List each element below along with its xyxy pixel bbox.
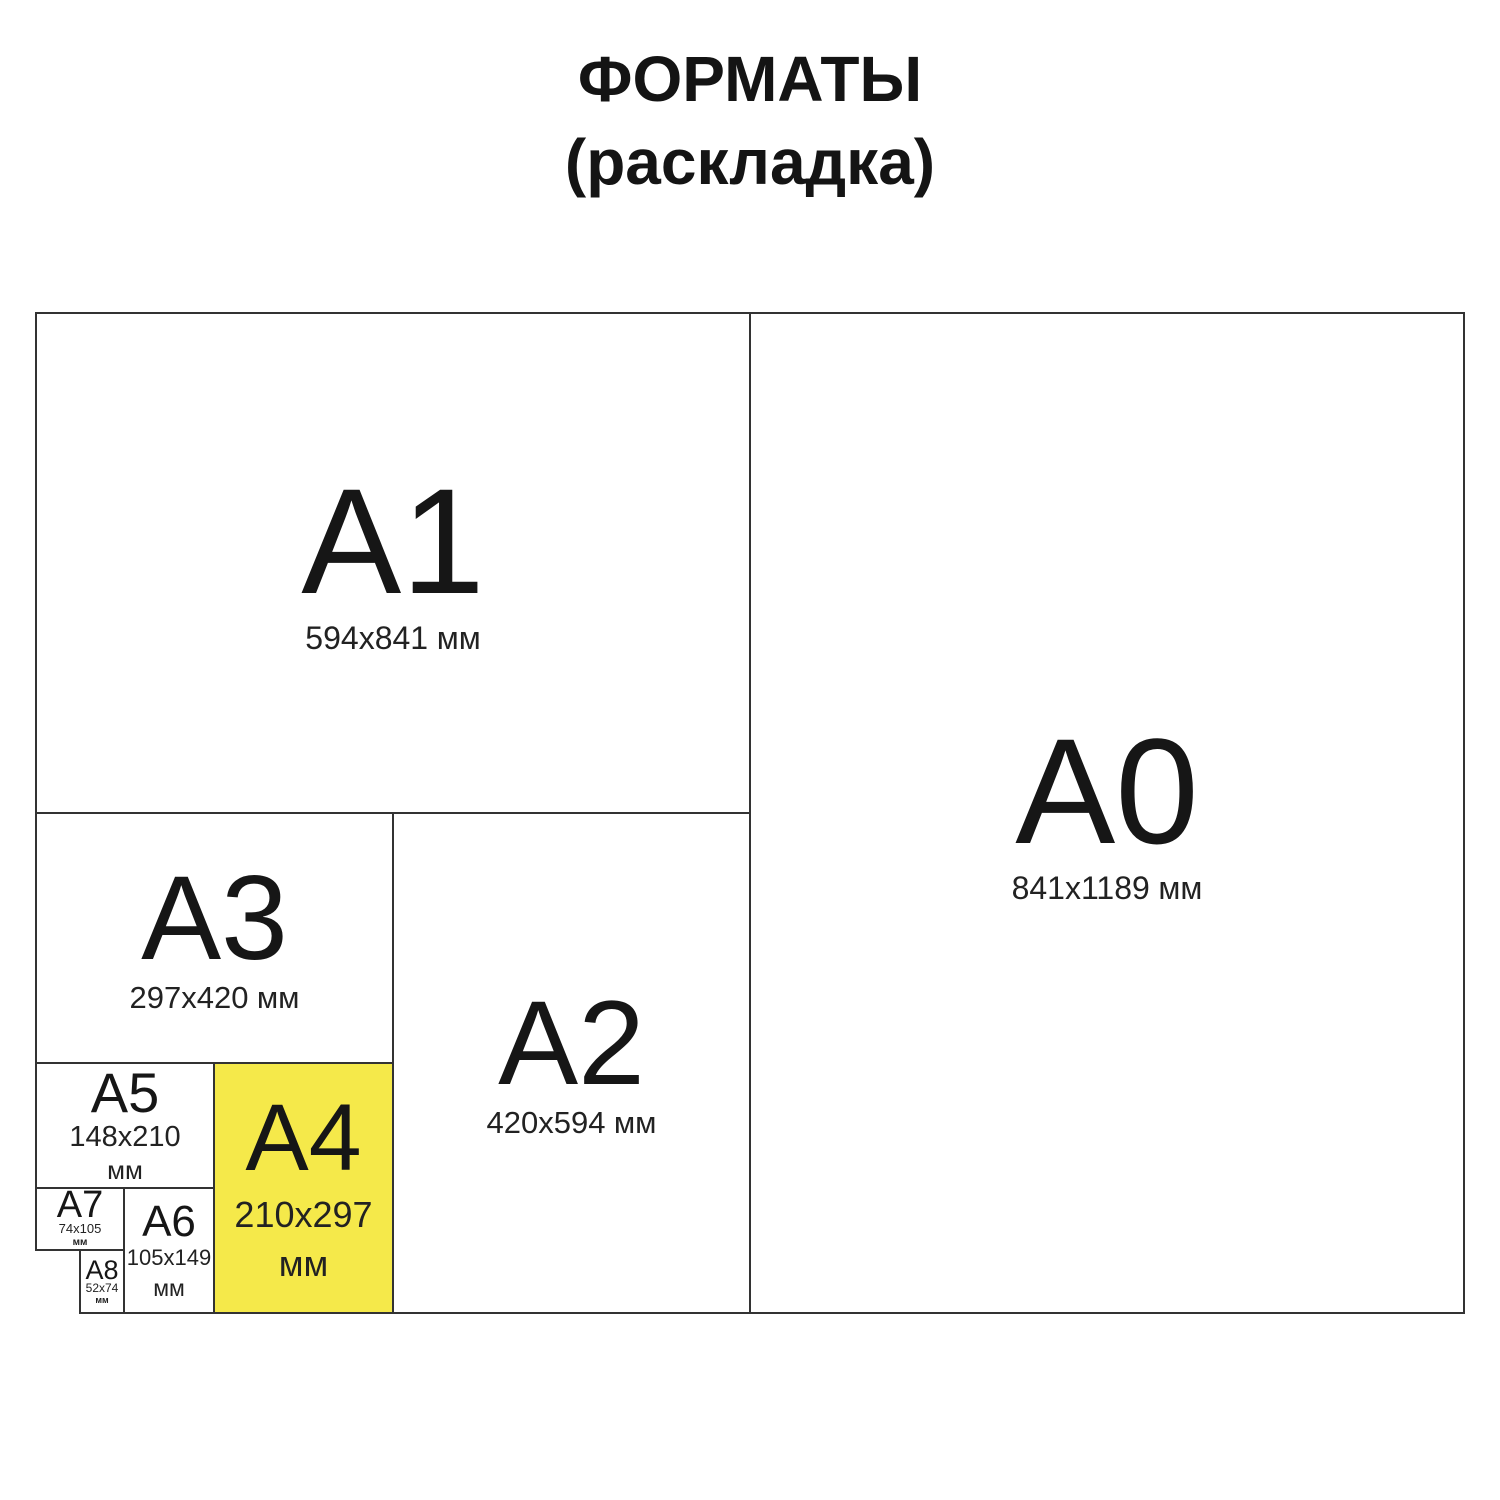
format-label-a6: A6 <box>142 1201 196 1243</box>
format-dimensions-a2: 420x594мм <box>487 1106 657 1140</box>
format-size-a3: 297x420 <box>130 980 249 1015</box>
format-unit-a8: мм <box>95 1296 108 1305</box>
page-title: ФОРМАТЫ (раскладка) <box>0 38 1500 204</box>
format-size-a2: 420x594 <box>487 1105 606 1140</box>
format-size-a5: 148x210 <box>69 1122 180 1154</box>
format-unit-a1: мм <box>437 620 481 656</box>
format-unit-a2: мм <box>614 1105 657 1140</box>
format-box-a5: A5 148x210 мм <box>36 1063 214 1188</box>
format-label-a2: A2 <box>498 986 645 1100</box>
format-size-a8: 52x74 <box>86 1282 119 1295</box>
format-label-a3: A3 <box>141 861 288 975</box>
format-box-a4-highlighted: A4 210x297 мм <box>214 1063 393 1313</box>
format-unit-a5: мм <box>107 1157 143 1184</box>
format-size-a6: 105x149 <box>127 1246 211 1270</box>
format-label-a7: A7 <box>57 1189 103 1221</box>
format-unit-a0: мм <box>1158 870 1202 906</box>
format-box-a3: A3 297x420мм <box>36 813 393 1063</box>
page-title-line2: (раскладка) <box>0 121 1500 204</box>
format-box-a6: A6 105x149 мм <box>124 1188 214 1313</box>
format-box-a7: A7 74x105 мм <box>36 1188 124 1250</box>
format-box-a8: A8 52x74 мм <box>80 1250 124 1313</box>
format-label-a0: A0 <box>1015 720 1198 863</box>
format-label-a8: A8 <box>85 1258 118 1282</box>
format-box-a2: A2 420x594мм <box>393 813 750 1313</box>
page-title-line1: ФОРМАТЫ <box>0 38 1500 121</box>
format-label-a4: A4 <box>245 1093 361 1183</box>
format-unit-a6: мм <box>153 1276 185 1300</box>
format-size-a0: 841x1189 <box>1012 870 1150 906</box>
format-unit-a4: мм <box>279 1245 329 1283</box>
format-size-a4: 210x297 <box>234 1195 372 1235</box>
format-size-a1: 594x841 <box>305 620 428 656</box>
format-label-a1: A1 <box>301 470 484 613</box>
format-unit-a7: мм <box>73 1238 88 1249</box>
format-dimensions-a3: 297x420мм <box>130 981 300 1015</box>
format-dimensions-a1: 594x841мм <box>305 621 480 656</box>
paper-formats-infographic: ФОРМАТЫ (раскладка) A1 594x841мм A0 841x… <box>0 0 1500 1500</box>
format-dimensions-a0: 841x1189мм <box>1012 871 1203 906</box>
format-size-a7: 74x105 <box>59 1222 102 1236</box>
format-unit-a3: мм <box>257 980 300 1015</box>
format-box-a0: A0 841x1189мм <box>750 313 1464 1313</box>
format-label-a5: A5 <box>91 1066 160 1119</box>
format-box-a1: A1 594x841мм <box>36 313 750 813</box>
